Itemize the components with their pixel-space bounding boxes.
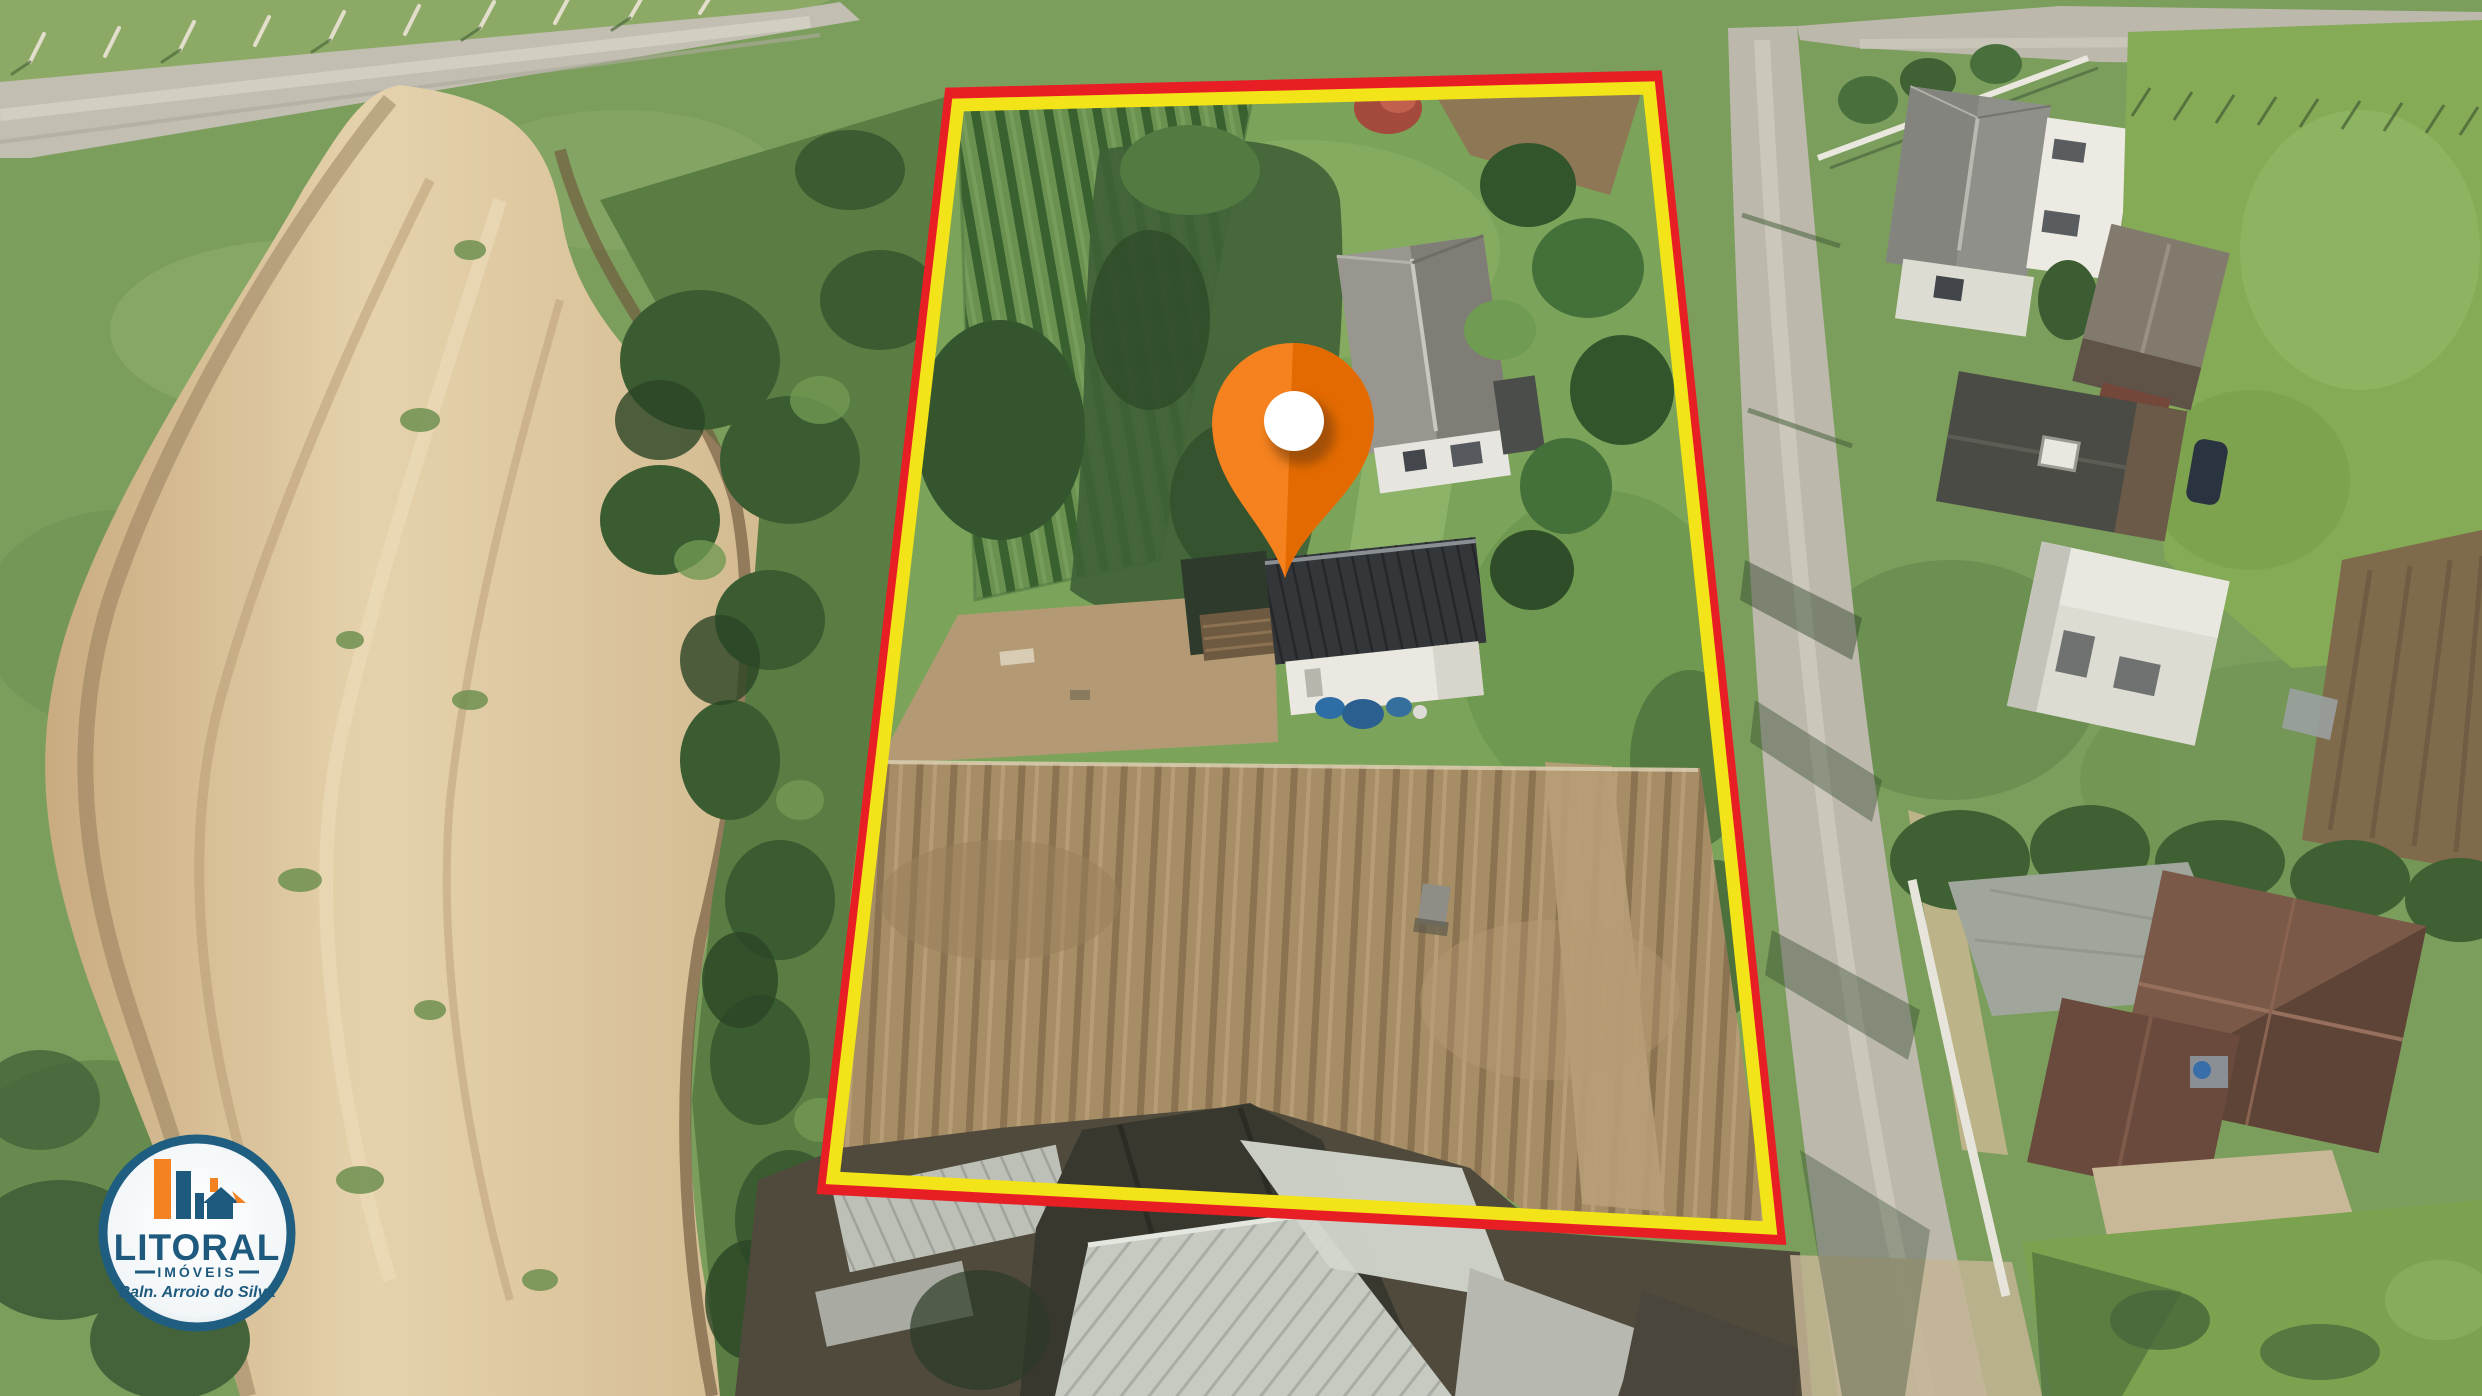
farm-annex <box>1181 551 1277 662</box>
agency-logo-badge: LITORAL IMÓVEIS Baln. Arroio do Silva <box>103 1139 291 1327</box>
rooftop-box <box>2190 1056 2228 1088</box>
pin-center-dot <box>1264 391 1324 451</box>
farmhouse <box>1265 537 1492 716</box>
logo-location: Baln. Arroio do Silva <box>119 1284 276 1301</box>
logo-name: LITORAL <box>114 1227 281 1268</box>
real-estate-aerial-photo: LITORAL IMÓVEIS Baln. Arroio do Silva <box>0 0 2482 1396</box>
aerial-photo <box>0 0 2482 1396</box>
logo-subtitle: IMÓVEIS <box>157 1263 236 1280</box>
lot-interior <box>825 78 1778 1237</box>
